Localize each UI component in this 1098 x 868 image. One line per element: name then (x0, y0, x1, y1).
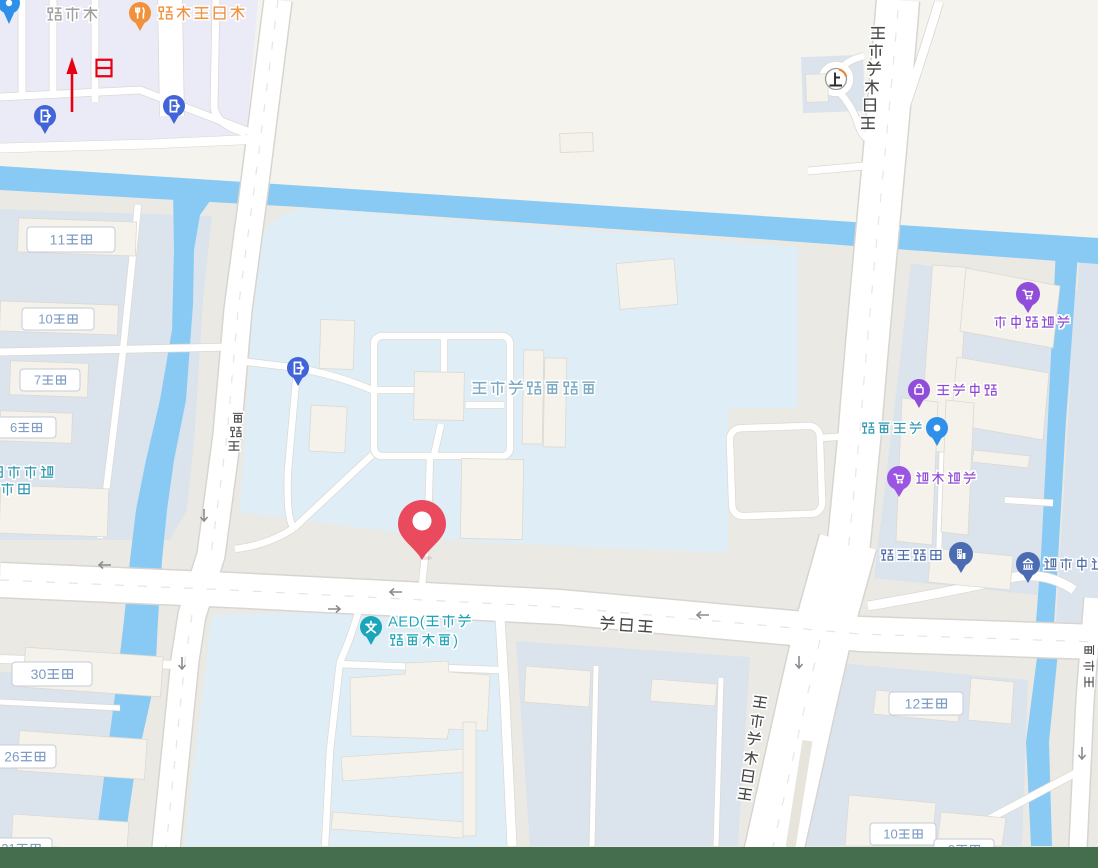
svg-text:3: 3 (31, 666, 39, 682)
svg-text:(: ( (420, 613, 425, 630)
svg-text:2: 2 (4, 749, 12, 764)
svg-text:0: 0 (46, 312, 53, 327)
svg-text:D: D (409, 613, 420, 630)
svg-text:6: 6 (10, 420, 17, 435)
svg-text:0: 0 (39, 666, 47, 682)
svg-text:2: 2 (913, 696, 921, 712)
svg-text:6: 6 (12, 749, 20, 764)
svg-text:1: 1 (905, 696, 913, 712)
svg-text:A: A (388, 613, 398, 630)
svg-text:1: 1 (58, 232, 66, 248)
svg-text:1: 1 (50, 232, 58, 248)
svg-text:0: 0 (891, 827, 898, 842)
svg-text:1: 1 (38, 312, 45, 327)
svg-text:): ) (453, 632, 458, 649)
svg-text:1: 1 (883, 827, 890, 842)
svg-text:7: 7 (34, 373, 41, 388)
svg-text:E: E (398, 613, 408, 630)
